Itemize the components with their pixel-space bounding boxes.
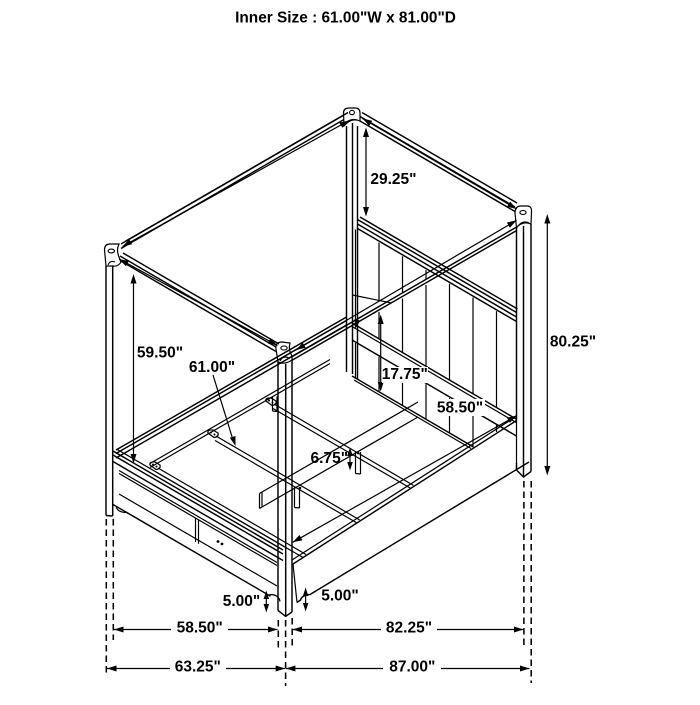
svg-text:58.50": 58.50" xyxy=(177,619,223,636)
svg-text:80.25": 80.25" xyxy=(550,333,596,350)
svg-text:Inner Size : 61.00"W x 81.00"D: Inner Size : 61.00"W x 81.00"D xyxy=(235,10,456,27)
svg-text:61.00": 61.00" xyxy=(189,359,235,376)
svg-text:58.50": 58.50" xyxy=(437,399,483,416)
svg-text:87.00": 87.00" xyxy=(389,659,435,676)
svg-text:63.25": 63.25" xyxy=(175,659,221,676)
svg-text:29.25": 29.25" xyxy=(370,171,416,188)
svg-text:6.75": 6.75" xyxy=(311,450,349,467)
svg-text:59.50": 59.50" xyxy=(137,344,183,361)
svg-text:82.25": 82.25" xyxy=(386,619,432,636)
svg-text:5.00": 5.00" xyxy=(321,588,359,605)
svg-text:5.00": 5.00" xyxy=(223,593,261,610)
svg-text:17.75": 17.75" xyxy=(382,366,428,383)
